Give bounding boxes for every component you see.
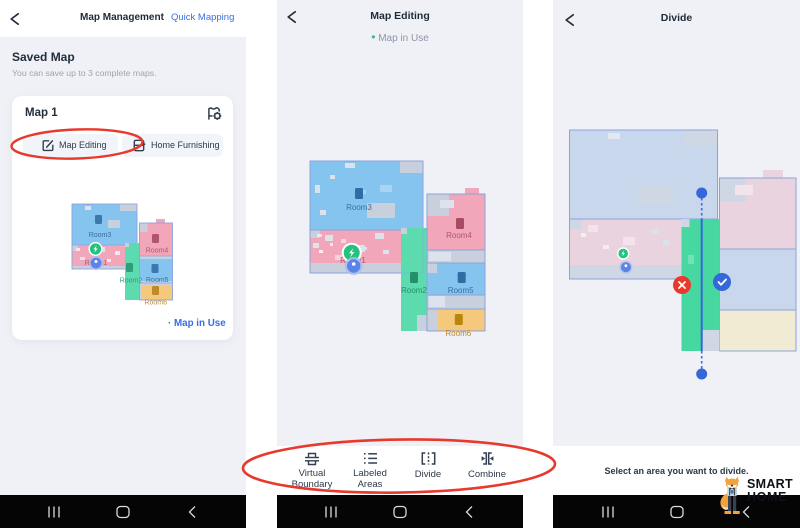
svg-text:Room5: Room5 — [448, 286, 474, 295]
svg-text:Room5: Room5 — [146, 277, 169, 284]
svg-text:Room6: Room6 — [445, 329, 471, 338]
svg-text:Room2: Room2 — [120, 278, 143, 285]
svg-text:Room3: Room3 — [346, 203, 372, 212]
svg-text:Room3: Room3 — [89, 232, 112, 239]
svg-text:Room2: Room2 — [401, 286, 427, 295]
svg-text:Room4: Room4 — [146, 248, 169, 255]
svg-text:Room6: Room6 — [144, 300, 167, 307]
svg-text:Room4: Room4 — [446, 231, 472, 240]
